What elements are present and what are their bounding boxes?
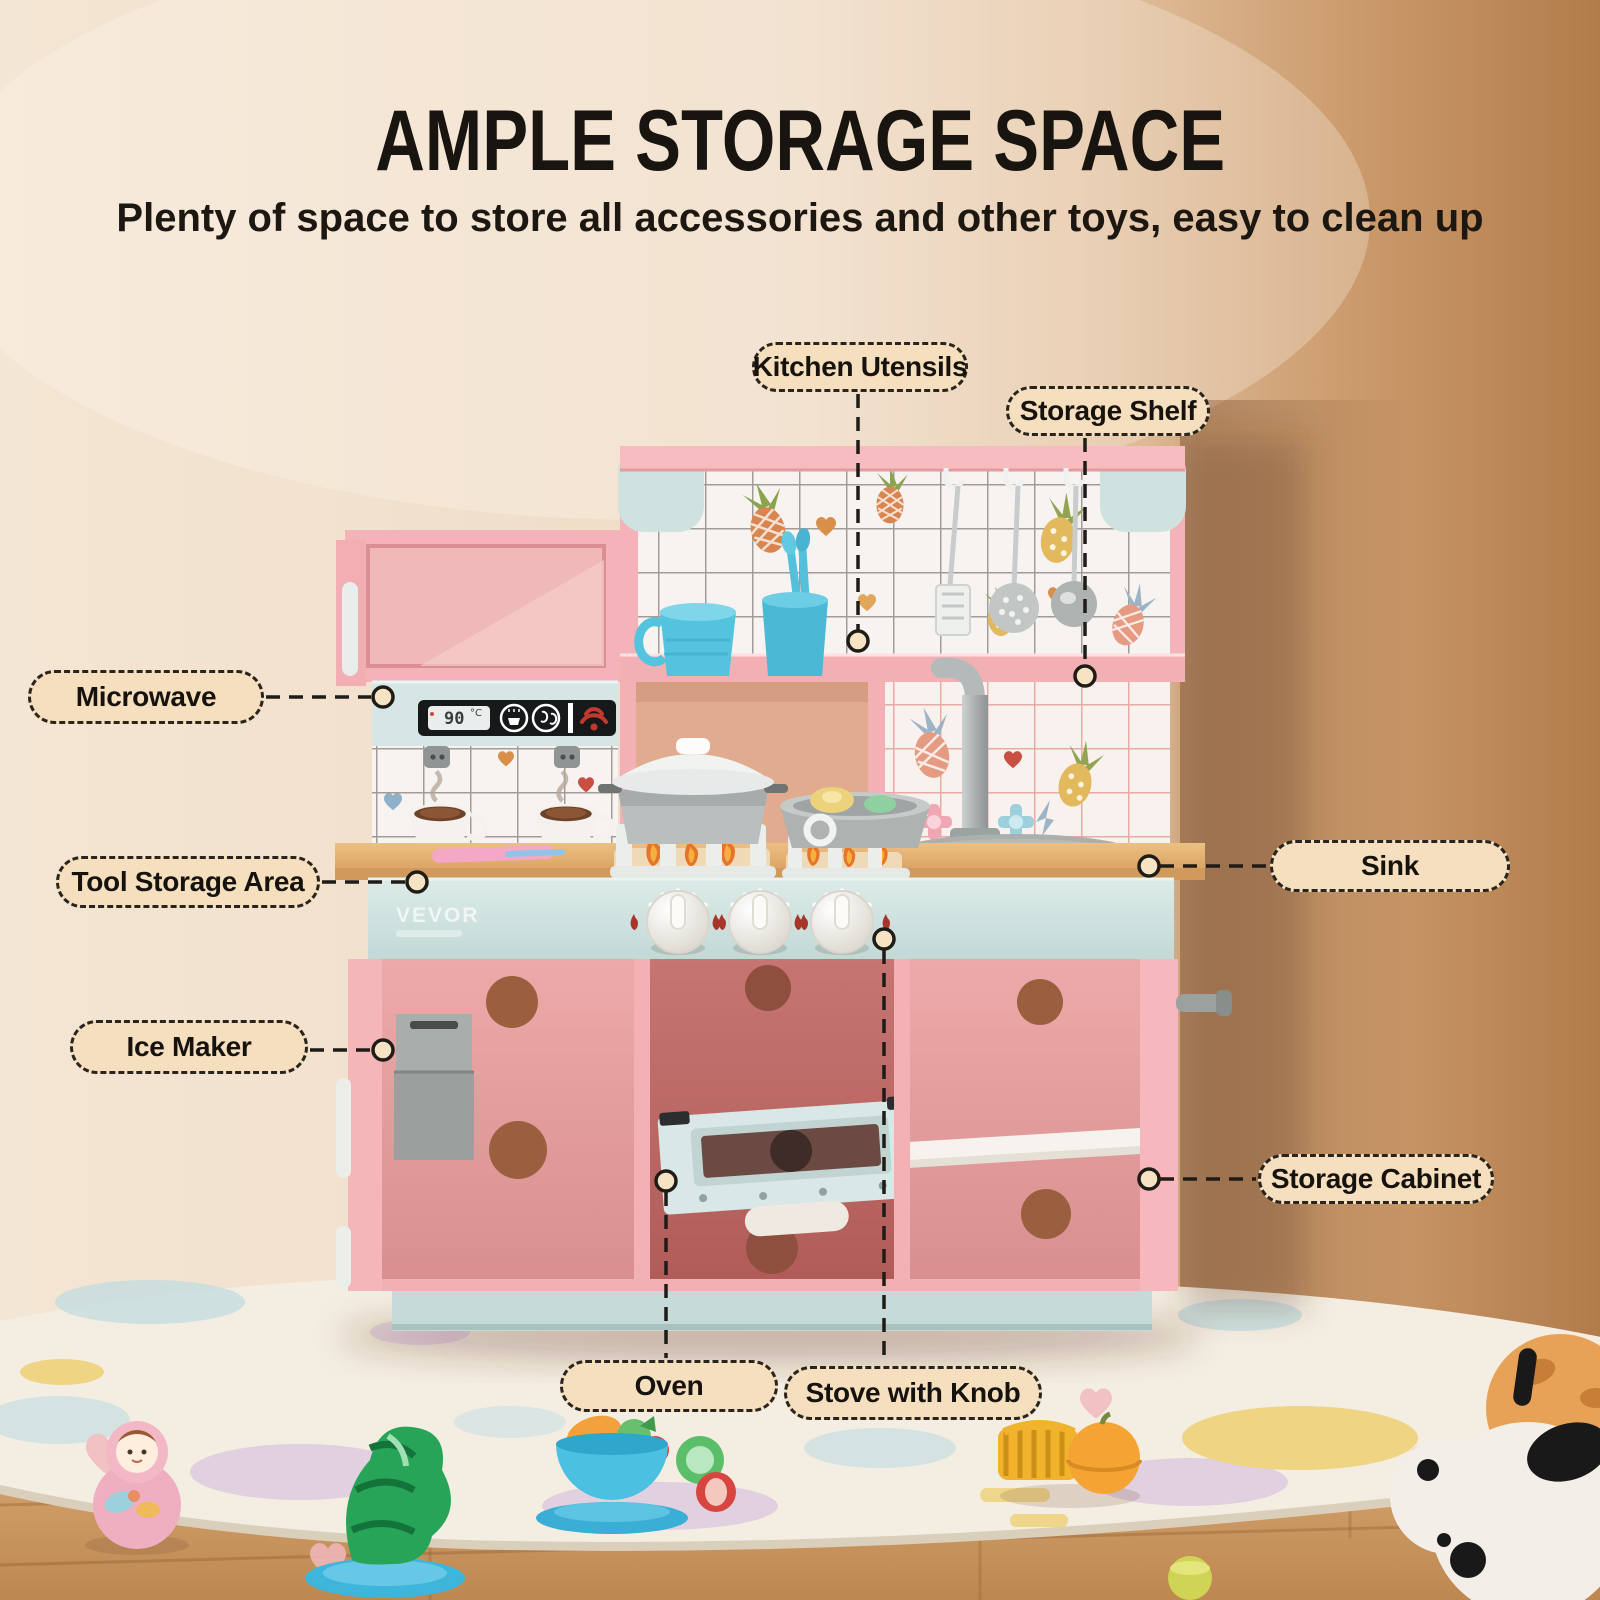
svg-text:°C: °C (470, 708, 482, 719)
ice-maker-unit (394, 1014, 474, 1160)
callout-oven: Oven (560, 1360, 778, 1412)
cabinet-door-handle (336, 1226, 351, 1288)
coffee-backsplash (372, 746, 618, 852)
product-feature-image: 90 °C (0, 0, 1600, 1600)
callout-kitchen-utensils: Kitchen Utensils (752, 342, 968, 392)
page-subtitle: Plenty of space to store all accessories… (0, 196, 1600, 241)
cabinet-door-handle (336, 1078, 351, 1178)
storage-shelf-unit (618, 446, 1186, 682)
microwave-appliance: 90 °C (372, 682, 618, 746)
stove-knobs (631, 888, 890, 955)
stove-front-panel: VEVOR (368, 879, 1174, 959)
page-title: AMPLE STORAGE SPACE (0, 92, 1600, 191)
lower-cabinets (336, 959, 1232, 1291)
callout-tool-storage-area: Tool Storage Area (56, 856, 320, 908)
svg-text:90: 90 (444, 709, 464, 729)
callout-sink: Sink (1270, 840, 1510, 892)
brand-logo: VEVOR (396, 904, 480, 927)
callout-storage-shelf: Storage Shelf (1006, 386, 1210, 436)
play-kitchen: 90 °C (335, 446, 1232, 1331)
callout-stove-with-knob: Stove with Knob (784, 1366, 1042, 1420)
callout-ice-maker: Ice Maker (70, 1020, 308, 1074)
callout-microwave: Microwave (28, 670, 264, 724)
microwave-cabinet (336, 530, 620, 686)
toy-basket-and-orange (998, 1414, 1140, 1508)
callout-storage-cabinet: Storage Cabinet (1258, 1154, 1494, 1204)
cabinet-door-handle (342, 582, 358, 676)
